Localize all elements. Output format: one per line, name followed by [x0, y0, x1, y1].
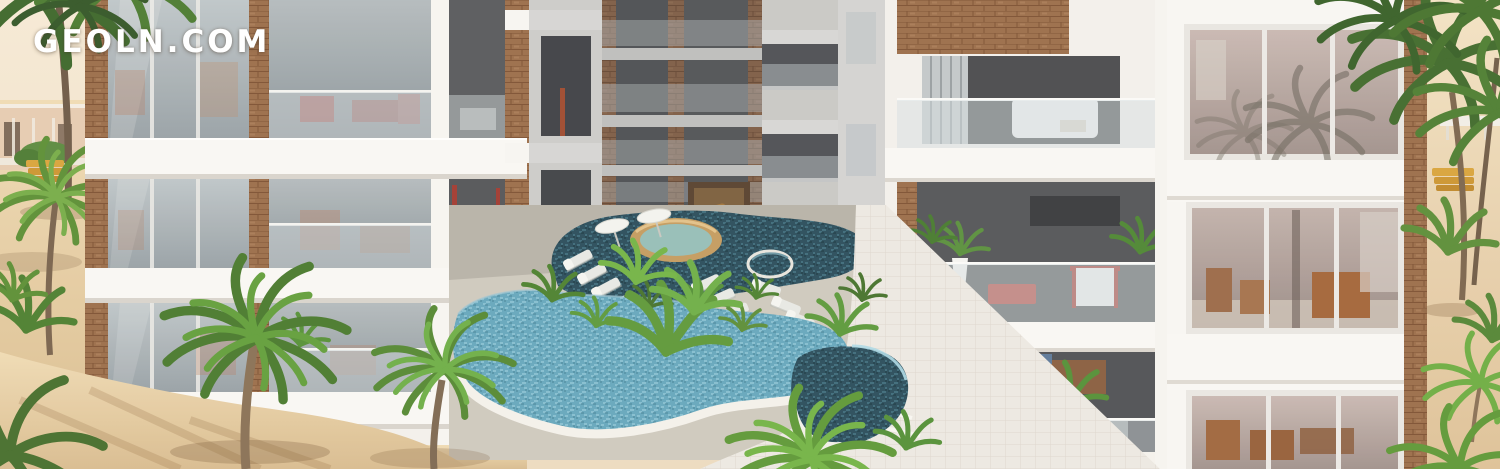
- scene-canvas: [0, 0, 1500, 469]
- warm-light-overlay: [0, 0, 1500, 469]
- geoln-watermark-logo: GEOLN.COM: [33, 24, 270, 60]
- property-render-photo: GEOLN.COM: [0, 0, 1500, 469]
